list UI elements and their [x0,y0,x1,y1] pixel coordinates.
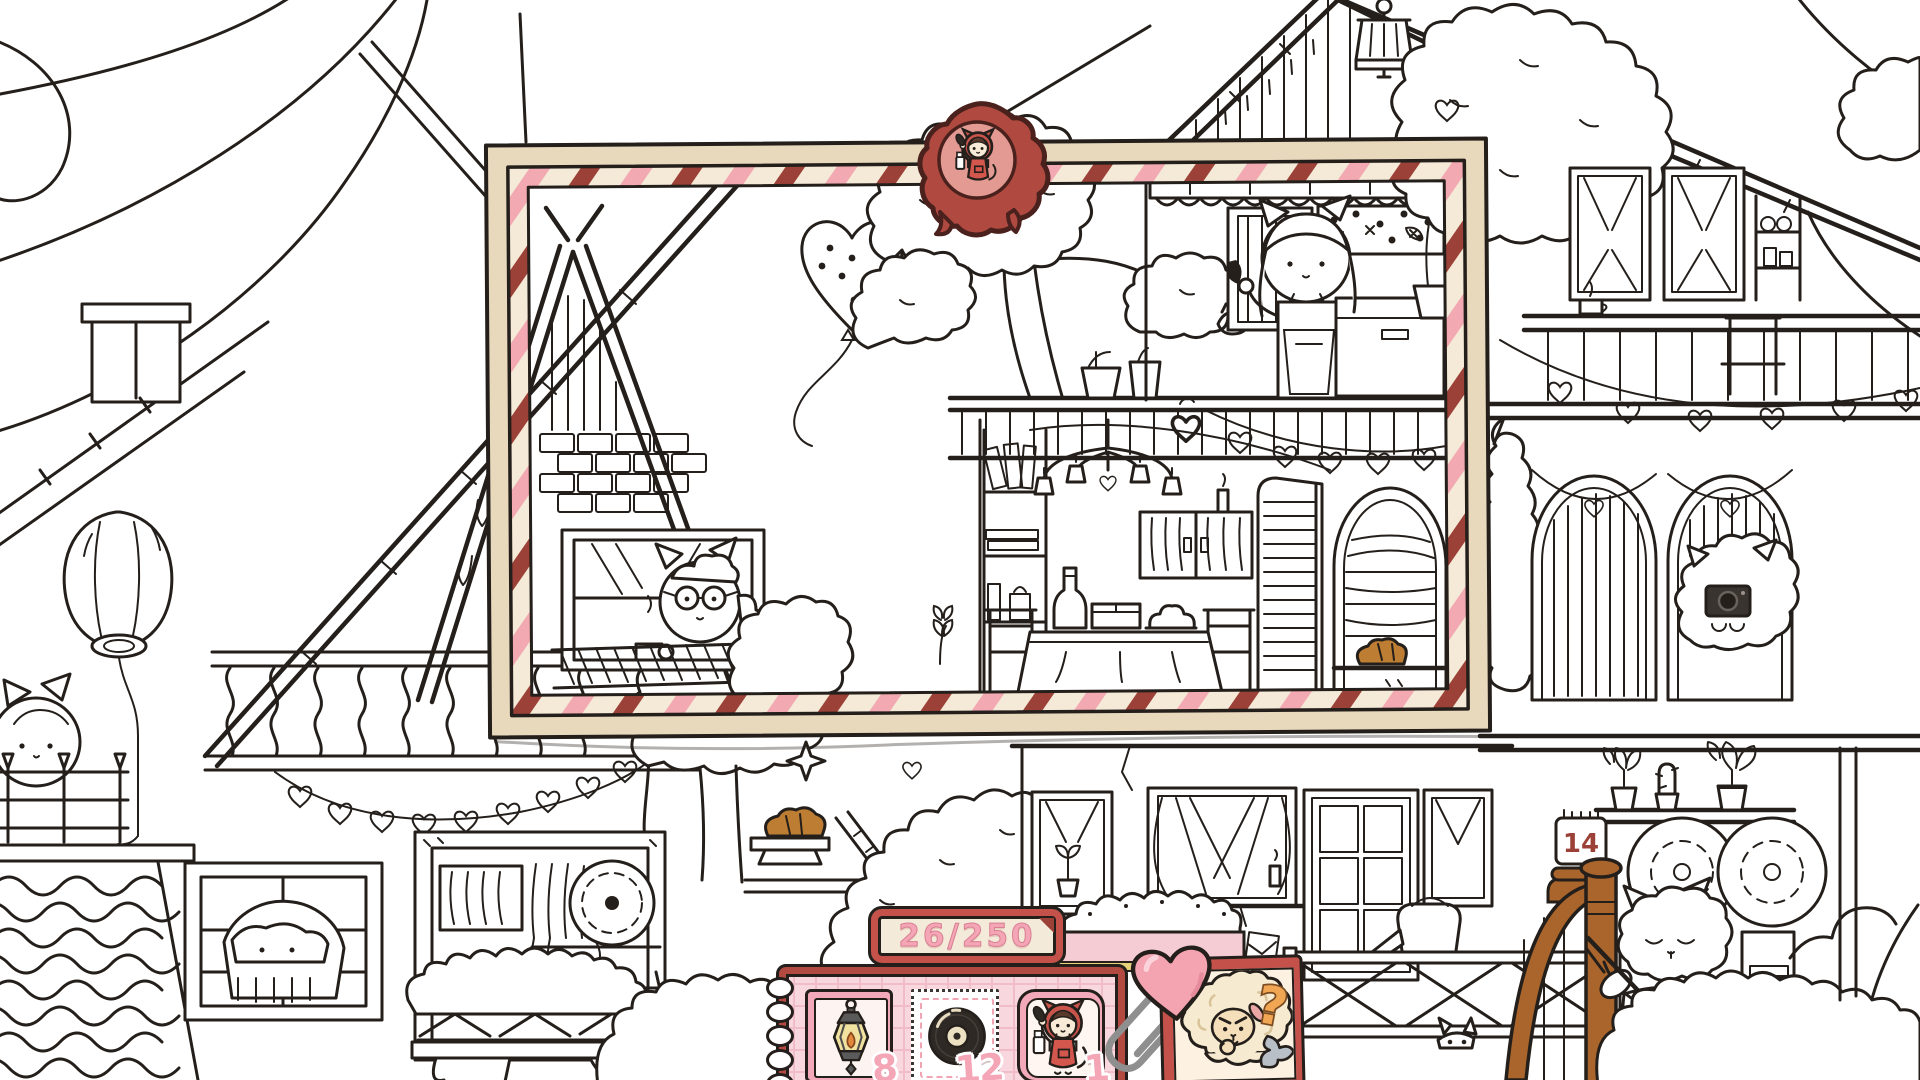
heart-icon [1120,935,1227,1033]
spiral-ring [766,977,794,999]
spiral-ring [766,1001,794,1023]
calendar-day: 14 [1563,829,1599,859]
croissant-stand [751,808,829,864]
wall-calendar: 14 [1556,810,1606,864]
camera-cat[interactable] [1675,534,1798,650]
right-wall-corner [1840,748,1856,1000]
spiral-ring [766,1049,794,1071]
item-slot-vinyl: 12 [911,989,999,1080]
tiled-roof [0,862,198,1080]
vinyl-count: 12 [953,1045,1003,1080]
wall-cabinet [1140,474,1252,578]
left-roof-chimney [0,304,268,548]
spiral-ring [766,1025,794,1047]
found-counter: 26/250 [868,906,1066,966]
arched-window-room [1334,488,1446,692]
frame-tree [851,111,1258,398]
lantern-count: 8 [871,1046,898,1080]
right-bushes [1597,971,1920,1080]
right-foliage [1392,4,1920,243]
shed-record[interactable] [570,861,654,945]
shutter-door [1258,478,1322,692]
heart-garland-left [275,762,648,835]
plant-shelf [1596,742,1794,822]
cross-railing [1284,948,1620,1042]
attic-bricks [540,434,706,512]
attic-planks [552,296,616,430]
sky-lantern[interactable] [64,512,172,844]
found-counter-label: 26/250 [898,918,1035,954]
balcony-cat[interactable] [0,674,80,786]
basket-cat-window[interactable] [185,863,382,1020]
counter-fold-corner [1039,918,1054,933]
item-slot-lantern: 8 [805,989,893,1080]
hidden-object-game-scene: 14 [0,0,1920,1080]
dining-table [986,568,1254,692]
wheat-sprig [934,606,953,664]
peeking-cat[interactable] [1438,1018,1476,1048]
